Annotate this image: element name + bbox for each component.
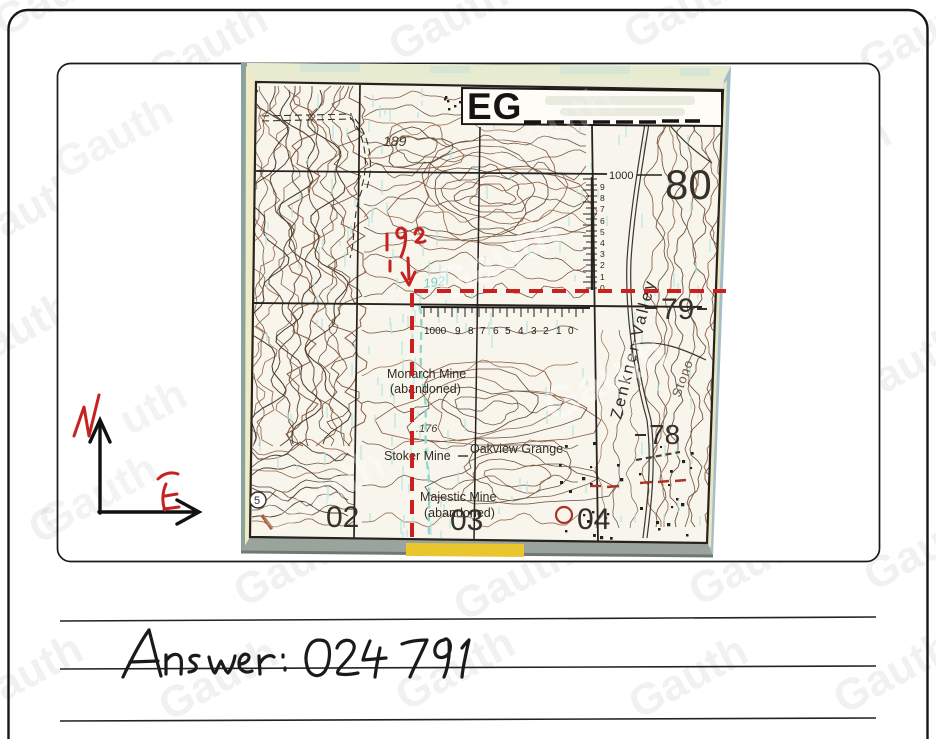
svg-text:8: 8 [468, 326, 474, 337]
svg-text:3: 3 [600, 249, 605, 259]
svg-text:Majestic Mine: Majestic Mine [420, 490, 496, 504]
svg-text:3: 3 [531, 326, 537, 337]
svg-text:7: 7 [480, 326, 486, 337]
svg-text:Stoker Mine: Stoker Mine [384, 449, 451, 463]
svg-text:7: 7 [600, 204, 605, 214]
svg-text:9: 9 [455, 326, 461, 337]
svg-text:Monarch Mine: Monarch Mine [387, 367, 466, 381]
svg-text:78: 78 [649, 419, 680, 450]
svg-text:1: 1 [600, 272, 605, 282]
svg-text:2: 2 [543, 326, 549, 337]
svg-text:(abandoned): (abandoned) [424, 506, 495, 520]
svg-text:5: 5 [600, 227, 605, 237]
svg-text:1000: 1000 [424, 326, 447, 337]
svg-text:4: 4 [600, 238, 605, 248]
svg-text:04: 04 [577, 503, 610, 536]
svg-text:(abandoned): (abandoned) [390, 382, 461, 396]
svg-text:6: 6 [493, 326, 499, 337]
svg-text:6: 6 [600, 216, 605, 226]
svg-text:79: 79 [661, 293, 694, 326]
svg-text:0: 0 [568, 326, 574, 337]
svg-text:.176: .176 [416, 423, 438, 435]
svg-text:189: 189 [383, 133, 407, 149]
svg-text:4: 4 [518, 326, 524, 337]
svg-text:Oakview Grange: Oakview Grange [470, 442, 563, 456]
svg-text:5: 5 [505, 326, 511, 337]
svg-text:2: 2 [600, 260, 605, 270]
svg-text:1000: 1000 [609, 170, 633, 182]
svg-text:8: 8 [600, 193, 605, 203]
svg-text:80: 80 [665, 161, 712, 208]
svg-text:9: 9 [600, 182, 605, 192]
svg-text:1: 1 [556, 326, 562, 337]
